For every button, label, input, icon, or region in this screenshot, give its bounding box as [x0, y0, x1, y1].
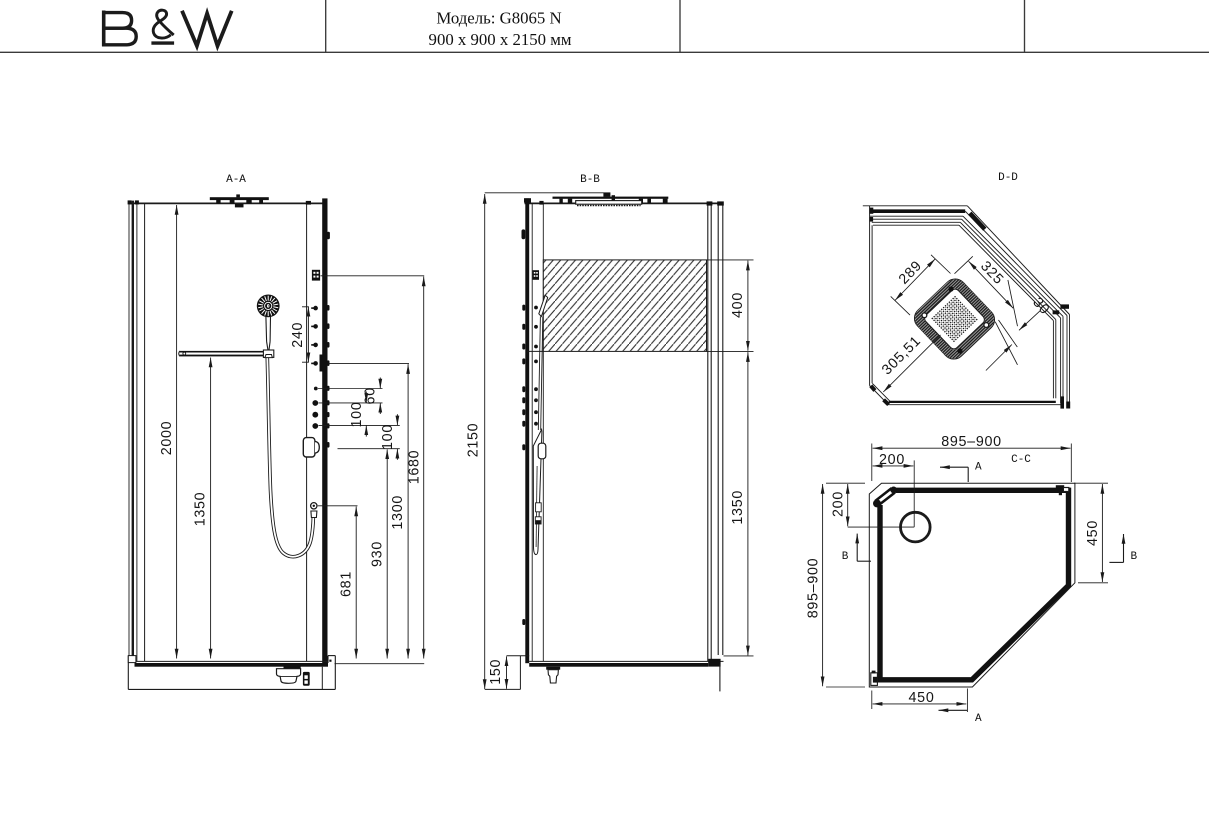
- svg-text:1680: 1680: [407, 450, 423, 485]
- svg-text:895–900: 895–900: [806, 558, 822, 619]
- svg-text:681: 681: [339, 571, 355, 597]
- svg-text:B: B: [842, 551, 849, 563]
- svg-text:100: 100: [349, 402, 365, 428]
- svg-text:Модель: G8065 N: Модель: G8065 N: [436, 9, 561, 28]
- svg-text:A: A: [975, 462, 982, 474]
- svg-text:2000: 2000: [159, 421, 175, 456]
- svg-text:895–900: 895–900: [941, 434, 1002, 450]
- svg-text:1350: 1350: [730, 490, 746, 525]
- svg-text:A-A: A-A: [226, 174, 246, 186]
- svg-text:B: B: [1130, 551, 1137, 563]
- svg-text:289: 289: [896, 258, 926, 288]
- svg-text:B-B: B-B: [580, 174, 600, 186]
- svg-text:2150: 2150: [466, 423, 482, 458]
- svg-text:400: 400: [730, 292, 746, 318]
- svg-text:900 x 900 x 2150 мм: 900 x 900 x 2150 мм: [429, 30, 572, 49]
- svg-text:D-D: D-D: [998, 172, 1018, 184]
- svg-text:450: 450: [909, 690, 935, 706]
- svg-text:930: 930: [370, 541, 386, 567]
- svg-text:A: A: [975, 713, 982, 725]
- svg-text:150: 150: [488, 659, 504, 685]
- svg-text:C-C: C-C: [1011, 454, 1031, 466]
- svg-text:240: 240: [290, 322, 306, 348]
- svg-text:450: 450: [1085, 520, 1101, 546]
- svg-text:1350: 1350: [193, 492, 209, 527]
- svg-text:200: 200: [831, 491, 847, 517]
- svg-text:30: 30: [1029, 295, 1052, 319]
- svg-text:1300: 1300: [390, 495, 406, 530]
- svg-text:305,51: 305,51: [879, 333, 924, 378]
- svg-text:200: 200: [879, 452, 905, 468]
- svg-text:100: 100: [380, 424, 396, 450]
- svg-text:325: 325: [977, 258, 1007, 288]
